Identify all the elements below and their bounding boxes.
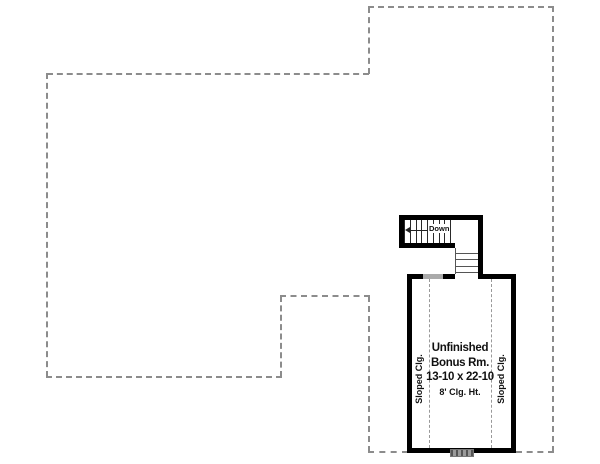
stair-wall-right (478, 215, 483, 279)
outline-bottom-left-connector (368, 451, 408, 453)
down-arrow-icon (405, 227, 410, 233)
outline-step-horizontal (280, 295, 370, 297)
down-arrow-line (409, 230, 429, 231)
outline-right-edge (552, 6, 554, 452)
room-name-line1: Unfinished (405, 341, 515, 356)
outline-bottom-left-edge (46, 376, 282, 378)
outline-top-edge (368, 6, 554, 8)
room-dimensions: 13-10 x 22-10 (405, 370, 515, 385)
floor-plan-canvas: Down Unfinished Bonus Rm. 13-10 x 22-10 … (0, 0, 600, 464)
outline-notch-left-vertical (368, 7, 370, 74)
outline-step-vertical (280, 296, 282, 377)
bonus-room-wall-top-right (478, 274, 516, 279)
foundation-vent (450, 449, 474, 457)
outline-bottom-right-connector (516, 451, 554, 453)
stair-winder-edge (455, 248, 456, 274)
room-label-block: Unfinished Bonus Rm. 13-10 x 22-10 8' Cl… (405, 341, 515, 398)
room-ceiling-height: 8' Clg. Ht. (405, 386, 515, 398)
stair-wall-bottom (399, 243, 455, 248)
knee-wall-gray-segment (423, 274, 443, 279)
outline-mid-vertical (368, 296, 370, 452)
outline-top-left-wing (47, 73, 369, 75)
stair-down-label: Down (428, 224, 450, 233)
outline-left-edge (46, 73, 48, 377)
stair-lower-treads (455, 248, 478, 274)
room-name-line2: Bonus Rm. (405, 356, 515, 371)
